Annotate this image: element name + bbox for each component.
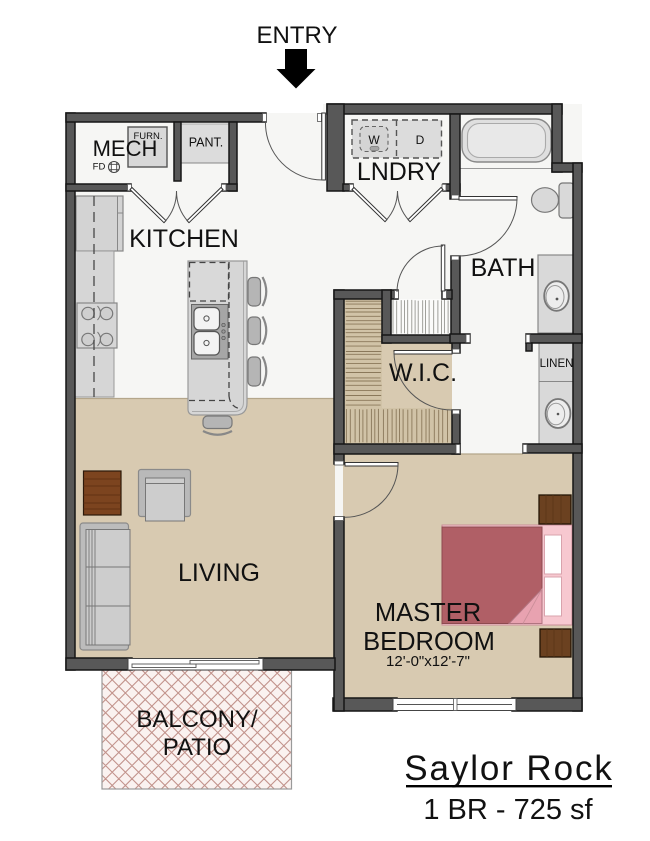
svg-text:MECH: MECH	[93, 136, 158, 161]
svg-text:D: D	[416, 133, 425, 147]
svg-text:PATIO: PATIO	[163, 734, 231, 761]
svg-text:FD: FD	[93, 162, 106, 173]
svg-text:PANT.: PANT.	[189, 136, 224, 150]
svg-text:W.I.C.: W.I.C.	[389, 359, 457, 387]
svg-text:BEDROOM: BEDROOM	[363, 628, 495, 656]
svg-text:W: W	[368, 133, 380, 147]
svg-text:Saylor Rock: Saylor Rock	[404, 749, 614, 788]
svg-text:BALCONY/: BALCONY/	[136, 706, 258, 733]
svg-text:KITCHEN: KITCHEN	[129, 225, 239, 253]
svg-text:LINEN: LINEN	[540, 358, 574, 370]
svg-text:MASTER: MASTER	[375, 599, 481, 627]
svg-text:LIVING: LIVING	[178, 559, 260, 587]
svg-text:1 BR - 725 sf: 1 BR - 725 sf	[423, 794, 593, 826]
svg-text:LNDRY: LNDRY	[357, 158, 442, 186]
svg-text:ENTRY: ENTRY	[257, 22, 338, 49]
svg-text:BATH: BATH	[471, 254, 536, 282]
svg-text:12'-0"x12'-7": 12'-0"x12'-7"	[386, 653, 470, 670]
